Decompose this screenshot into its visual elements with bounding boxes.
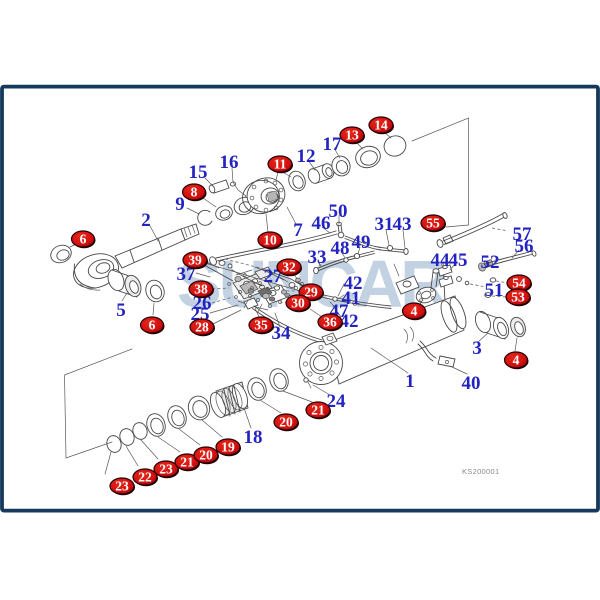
svg-text:44: 44 <box>431 250 451 271</box>
svg-text:21: 21 <box>311 403 325 418</box>
svg-text:8: 8 <box>191 185 198 200</box>
svg-text:16: 16 <box>220 152 239 173</box>
svg-text:23: 23 <box>115 479 129 494</box>
svg-text:5: 5 <box>116 300 126 321</box>
svg-text:19: 19 <box>221 440 235 455</box>
svg-text:30: 30 <box>291 296 305 311</box>
svg-text:1: 1 <box>405 371 415 392</box>
svg-text:15: 15 <box>189 162 208 183</box>
svg-text:13: 13 <box>345 128 359 143</box>
svg-text:4: 4 <box>513 353 520 368</box>
svg-text:40: 40 <box>462 373 481 394</box>
svg-text:7: 7 <box>293 220 303 241</box>
svg-text:32: 32 <box>282 260 296 275</box>
svg-text:23: 23 <box>159 462 173 477</box>
svg-text:22: 22 <box>138 470 152 485</box>
svg-text:14: 14 <box>374 118 388 133</box>
svg-text:53: 53 <box>511 290 525 305</box>
svg-text:50: 50 <box>329 201 348 222</box>
svg-text:KS200001: KS200001 <box>462 467 499 476</box>
svg-text:34: 34 <box>272 323 292 344</box>
svg-text:21: 21 <box>180 455 194 470</box>
svg-text:20: 20 <box>279 415 293 430</box>
svg-text:31: 31 <box>375 214 394 235</box>
svg-text:49: 49 <box>352 232 371 253</box>
svg-text:56: 56 <box>515 236 534 257</box>
svg-text:54: 54 <box>512 276 526 291</box>
svg-text:12: 12 <box>297 146 316 167</box>
svg-text:2: 2 <box>141 210 151 231</box>
svg-text:36: 36 <box>323 315 337 330</box>
svg-text:48: 48 <box>331 238 350 259</box>
svg-text:46: 46 <box>312 213 331 234</box>
svg-text:35: 35 <box>254 318 268 333</box>
svg-text:4: 4 <box>411 304 418 319</box>
svg-text:6: 6 <box>80 232 87 247</box>
svg-text:39: 39 <box>188 253 202 268</box>
svg-text:51: 51 <box>485 280 504 301</box>
svg-text:10: 10 <box>263 233 277 248</box>
svg-text:28: 28 <box>195 320 209 335</box>
svg-text:43: 43 <box>393 214 412 235</box>
svg-text:18: 18 <box>244 427 263 448</box>
svg-text:3: 3 <box>472 338 482 359</box>
svg-text:11: 11 <box>274 157 287 172</box>
svg-text:55: 55 <box>426 216 440 231</box>
svg-text:9: 9 <box>175 194 185 215</box>
svg-text:45: 45 <box>449 250 468 271</box>
svg-text:38: 38 <box>194 282 208 297</box>
svg-text:52: 52 <box>481 252 500 273</box>
svg-text:17: 17 <box>323 134 343 155</box>
svg-text:20: 20 <box>199 448 213 463</box>
svg-text:6: 6 <box>149 318 156 333</box>
svg-text:33: 33 <box>308 247 327 268</box>
